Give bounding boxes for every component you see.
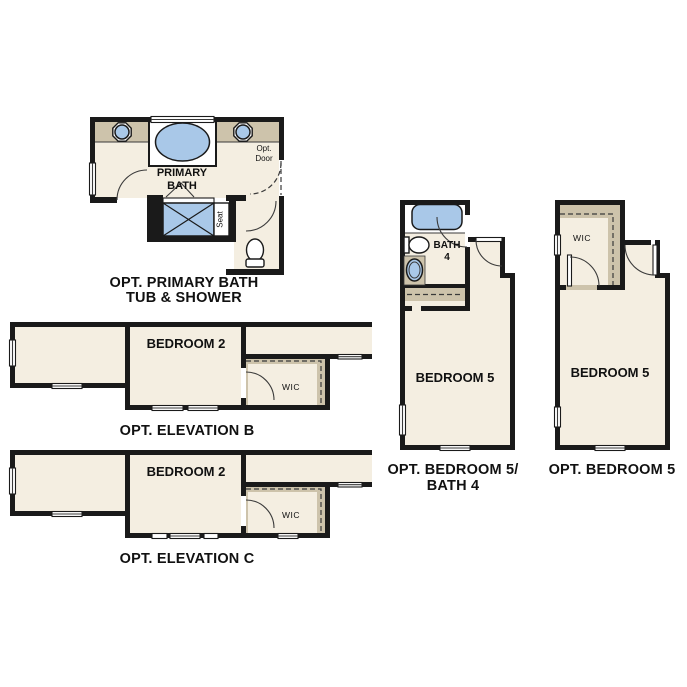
plan-opt-elevation-b: BEDROOM 2 WIC OPT. ELEVATION B [10, 322, 373, 439]
caption-elevation-c: OPT. ELEVATION C [120, 551, 255, 567]
caption-primary-bath: TUB & SHOWER [126, 290, 242, 306]
toilet-icon [404, 237, 429, 253]
sink-left-icon [113, 123, 131, 141]
floor-plans-canvas: Seat PRIMARY BATH Opt. Door OPT. PRIMARY… [0, 0, 687, 687]
bedroom5-label: BEDROOM 5 [416, 370, 495, 385]
opt-door-label: Door [255, 154, 273, 163]
seat-label: Seat [216, 211, 225, 228]
plan-opt-bedroom5: WIC BEDROOM 5 OPT. BEDROOM 5 [549, 200, 676, 478]
wic-label: WIC [282, 382, 300, 392]
plan-opt-elevation-c: BEDROOM 2 WIC OPT. ELEVATION C [10, 450, 373, 567]
toilet-icon [246, 239, 264, 267]
plan-opt-primary-bath: Seat PRIMARY BATH Opt. Door OPT. PRIMARY… [90, 117, 285, 307]
caption-bedroom5-bath4: OPT. BEDROOM 5/ [387, 462, 518, 478]
sink-icon [404, 256, 425, 285]
caption-primary-bath: OPT. PRIMARY BATH [110, 275, 259, 291]
caption-elevation-b: OPT. ELEVATION B [120, 423, 255, 439]
bedroom2-label: BEDROOM 2 [147, 464, 226, 479]
bedroom5-label: BEDROOM 5 [571, 365, 650, 380]
bath4-label: BATH [433, 240, 460, 251]
plan-opt-bedroom5-bath4: BATH 4 BEDROOM 5 OPT. BEDROOM 5/ BATH 4 [387, 200, 518, 494]
sink-right-icon [234, 123, 252, 141]
caption-bedroom5-bath4: BATH 4 [427, 478, 480, 494]
bedroom2-label: BEDROOM 2 [147, 336, 226, 351]
primary-bath-label: BATH [167, 180, 197, 192]
bath4-label: 4 [444, 252, 450, 263]
floor-plan-sheet: Seat PRIMARY BATH Opt. Door OPT. PRIMARY… [0, 0, 687, 687]
wic-label: WIC [573, 233, 591, 243]
opt-door-label: Opt. [256, 144, 271, 153]
closet-shelf [405, 288, 465, 301]
bathtub-icon [405, 205, 465, 234]
bathtub-icon [149, 119, 216, 166]
caption-bedroom5: OPT. BEDROOM 5 [549, 462, 676, 478]
primary-bath-label: PRIMARY [157, 167, 208, 179]
wic-label: WIC [282, 510, 300, 520]
